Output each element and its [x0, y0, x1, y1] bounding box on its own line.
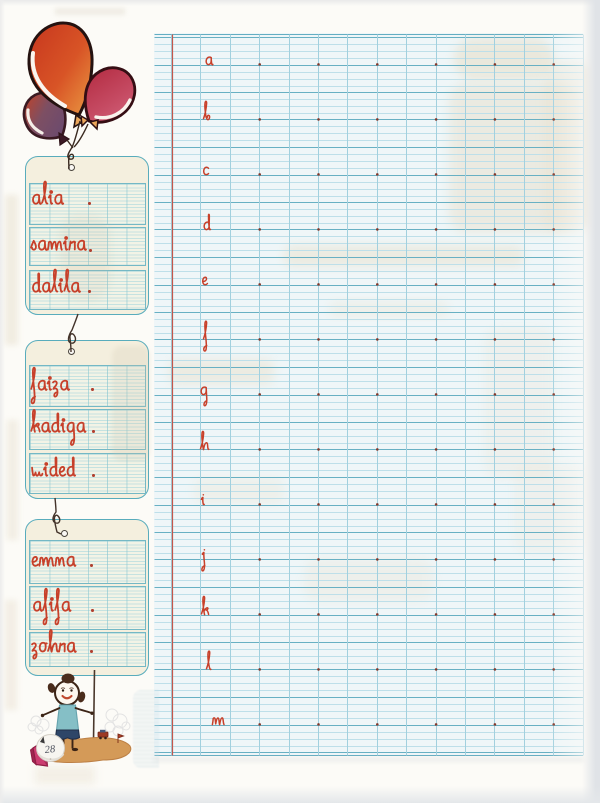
svg-text:28: 28 — [44, 744, 56, 756]
